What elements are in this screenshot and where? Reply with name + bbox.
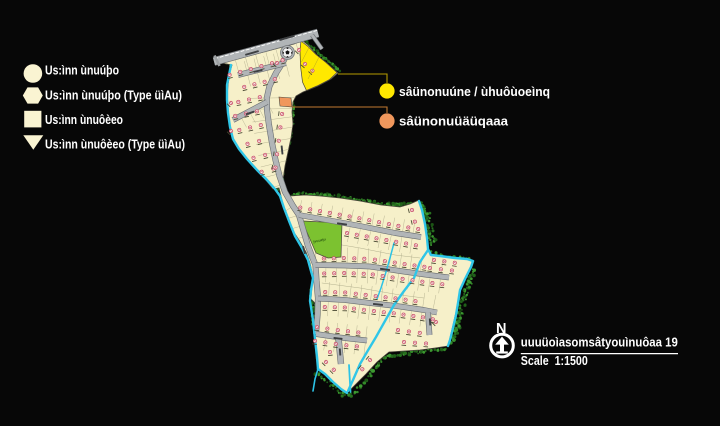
svg-text:sâünonuúne / ùhuôùoeìnq: sâünonuúne / ùhuôùoeìnq bbox=[399, 85, 550, 99]
svg-text:Us:ìnn ùnuúþo (Type üìAu): Us:ìnn ùnuúþo (Type üìAu) bbox=[45, 88, 182, 102]
svg-text:Us:ìnn ùnuúþo: Us:ìnn ùnuúþo bbox=[45, 63, 119, 77]
svg-text:Us:ìnn ùnuôèeo: Us:ìnn ùnuôèeo bbox=[45, 113, 123, 127]
svg-text:Scale 1:1500: Scale 1:1500 bbox=[521, 354, 588, 368]
svg-text:Us:ìnn ùnuôèeo (Type üìAu): Us:ìnn ùnuôèeo (Type üìAu) bbox=[45, 138, 185, 152]
svg-text:sâünonuüäüqaaa: sâünonuüäüqaaa bbox=[399, 115, 509, 129]
svg-text:uuuüoìasomsâtyouìnuôaa 19: uuuüoìasomsâtyouìnuôaa 19 bbox=[521, 334, 678, 349]
